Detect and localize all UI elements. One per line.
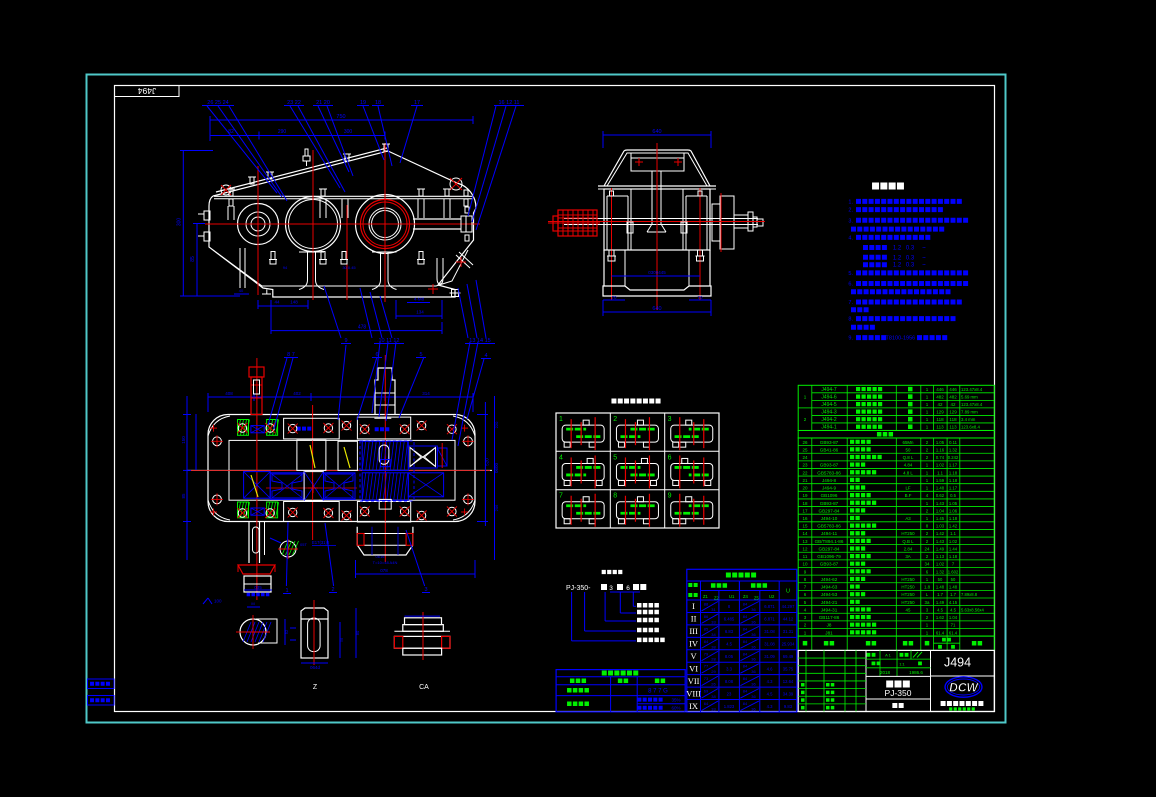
svg-text:7.: 7.: [848, 300, 853, 306]
svg-text:U1: U1: [729, 594, 735, 599]
svg-text:206: 206: [494, 504, 499, 511]
svg-text:12: 12: [802, 546, 808, 551]
svg-text:13: 13: [802, 539, 808, 544]
svg-text:45: 45: [906, 607, 911, 612]
svg-text:44: 44: [274, 300, 280, 305]
svg-text:VII: VII: [688, 676, 700, 686]
svg-text:GB117-86: GB117-86: [819, 615, 840, 620]
svg-text:1.42: 1.42: [936, 531, 945, 536]
svg-text:1.49: 1.49: [936, 546, 945, 551]
svg-text:28: 28: [711, 657, 716, 662]
svg-text:18: 18: [802, 501, 808, 506]
svg-text:9: 9: [668, 493, 672, 500]
svg-text:34: 34: [711, 632, 716, 637]
svg-text:8.08: 8.08: [725, 679, 734, 684]
svg-text:50: 50: [951, 577, 956, 582]
svg-text:4.15: 4.15: [949, 600, 958, 605]
svg-text:26: 26: [711, 682, 716, 687]
svg-text:Z5: Z5: [754, 596, 760, 601]
svg-text:1.2: 1.2: [893, 255, 902, 261]
svg-text:1.05: 1.05: [936, 440, 945, 445]
svg-text:1.48: 1.48: [936, 585, 945, 590]
svg-text:482: 482: [949, 395, 957, 400]
svg-text:6.871: 6.871: [764, 604, 775, 609]
svg-text:123.6x8.4: 123.6x8.4: [961, 425, 980, 430]
svg-text:1.16: 1.16: [936, 447, 945, 452]
svg-text:4: 4: [559, 454, 563, 461]
svg-text:4.3: 4.3: [767, 704, 773, 709]
svg-text:J494-2: J494-2: [821, 417, 837, 423]
svg-text:GB1096: GB1096: [821, 493, 838, 498]
svg-text:1.02: 1.02: [936, 562, 945, 567]
svg-text:88: 88: [704, 602, 709, 607]
svg-text:1.43: 1.43: [936, 501, 945, 506]
svg-text:70: 70: [611, 295, 617, 300]
svg-text:1.45: 1.45: [936, 516, 945, 521]
svg-text:36: 36: [751, 619, 756, 624]
svg-text:~: ~: [922, 255, 926, 261]
svg-text:U2: U2: [769, 594, 775, 599]
svg-text:J8: J8: [827, 623, 832, 628]
svg-text:30:0.45: 30:0.45: [342, 265, 356, 270]
svg-text:8: 8: [613, 493, 617, 500]
svg-text:III: III: [689, 626, 698, 636]
svg-text:1.: 1.: [848, 199, 853, 205]
svg-text:86: 86: [704, 614, 709, 619]
svg-text:U: U: [786, 589, 790, 595]
svg-text:33: 33: [711, 707, 716, 712]
svg-text:J494-9: J494-9: [822, 486, 836, 491]
svg-text:118: 118: [949, 417, 957, 422]
svg-text:Z: Z: [313, 684, 318, 691]
svg-text:GB297-84: GB297-84: [819, 508, 840, 513]
svg-text:9.: 9.: [848, 336, 853, 342]
svg-text:Z1: Z1: [703, 594, 709, 599]
svg-text:36: 36: [751, 607, 756, 612]
svg-text:1.1: 1.1: [950, 531, 956, 536]
svg-text:314: 314: [422, 391, 430, 396]
svg-text:GB93-87: GB93-87: [820, 463, 839, 468]
svg-text:50: 50: [906, 447, 911, 452]
svg-text:3: 3: [609, 585, 613, 592]
svg-text:84: 84: [743, 701, 748, 706]
svg-text:24: 24: [925, 546, 930, 551]
svg-text:J81: J81: [825, 630, 833, 635]
svg-text:J494-63: J494-63: [821, 585, 838, 590]
svg-text:14: 14: [802, 531, 808, 536]
svg-text:4.84: 4.84: [904, 463, 913, 468]
svg-text:134: 134: [416, 310, 424, 315]
svg-text:1.02: 1.02: [936, 463, 945, 468]
svg-text:HT250: HT250: [901, 585, 915, 590]
svg-text:71: 71: [951, 623, 956, 628]
svg-text:0.3: 0.3: [906, 263, 915, 269]
svg-text:1986.6: 1986.6: [909, 670, 923, 675]
svg-text:1.59: 1.59: [936, 478, 945, 483]
svg-text:1.03: 1.03: [936, 524, 945, 529]
svg-text:21: 21: [802, 478, 808, 483]
svg-text:60%: 60%: [671, 706, 680, 711]
svg-text:4.8 L: 4.8 L: [903, 470, 913, 475]
svg-text:640: 640: [652, 129, 661, 135]
svg-text:300: 300: [177, 218, 183, 227]
svg-text:2.: 2.: [848, 208, 853, 214]
svg-text:23: 23: [802, 463, 808, 468]
svg-text:84: 84: [743, 664, 748, 669]
svg-text:3: 3: [668, 416, 672, 423]
svg-text:94: 94: [283, 265, 288, 270]
svg-text:3a: 3a: [925, 600, 930, 605]
svg-text:M: M: [339, 638, 344, 641]
svg-text:1.17: 1.17: [949, 463, 958, 468]
svg-text:64: 64: [704, 701, 709, 706]
svg-text:17: 17: [802, 508, 808, 513]
svg-text:J494-11: J494-11: [821, 531, 838, 536]
svg-text:5.63x8.56x4: 5.63x8.56x4: [961, 607, 984, 612]
svg-text:0.74: 0.74: [936, 455, 945, 460]
svg-text:M: M: [251, 601, 254, 606]
svg-text:8.05: 8.05: [725, 654, 734, 659]
svg-text:J494-10: J494-10: [821, 516, 838, 521]
svg-text:1.32: 1.32: [936, 569, 945, 574]
svg-text:HT250: HT250: [901, 531, 915, 536]
svg-text:118: 118: [936, 417, 944, 422]
svg-text:4.3: 4.3: [767, 679, 773, 684]
svg-text:1.06: 1.06: [949, 508, 958, 513]
svg-text:2.84: 2.84: [904, 546, 913, 551]
svg-text:36: 36: [751, 632, 756, 637]
svg-text:148: 148: [290, 300, 298, 305]
svg-text:6.871: 6.871: [764, 617, 775, 622]
svg-text:1.42: 1.42: [949, 524, 958, 529]
svg-text:84: 84: [743, 651, 748, 656]
svg-text:34.39: 34.39: [783, 691, 794, 696]
svg-text:1.04: 1.04: [936, 508, 945, 513]
svg-text:DCW: DCW: [949, 681, 979, 695]
svg-text:A3: A3: [905, 516, 911, 521]
svg-text:PJ-350: PJ-350: [885, 688, 912, 698]
svg-text:J494-21: J494-21: [821, 600, 838, 605]
svg-text:129: 129: [936, 410, 944, 415]
svg-text:Q.B L: Q.B L: [902, 539, 914, 544]
svg-text:A 1: A 1: [885, 652, 892, 657]
svg-text:36: 36: [751, 682, 756, 687]
svg-text:HT250: HT250: [901, 592, 915, 597]
svg-text:3.3: 3.3: [726, 666, 732, 671]
svg-text:11: 11: [803, 554, 808, 559]
svg-text:J494-7: J494-7: [821, 387, 837, 393]
svg-text:31.08: 31.08: [764, 629, 775, 634]
svg-text:0.3: 0.3: [906, 246, 915, 252]
svg-text:77: 77: [704, 664, 709, 669]
svg-text:80: 80: [355, 630, 360, 635]
svg-text:61.4: 61.4: [936, 630, 945, 635]
svg-text:44.12: 44.12: [783, 617, 794, 622]
svg-text:85: 85: [181, 493, 186, 499]
svg-text:6.83: 6.83: [725, 629, 734, 634]
svg-text:22: 22: [802, 470, 808, 475]
svg-text:1.04: 1.04: [949, 615, 958, 620]
svg-text:33: 33: [711, 619, 716, 624]
svg-text:GB93-87: GB93-87: [820, 501, 839, 506]
svg-text:J494-6: J494-6: [821, 395, 837, 401]
svg-text:064d: 064d: [310, 665, 321, 670]
svg-text:GB41-86: GB41-86: [820, 447, 839, 452]
svg-text:520: 520: [485, 458, 490, 466]
svg-text:T=10=48 A4N: T=10=48 A4N: [373, 560, 398, 565]
svg-text:0600: 0600: [494, 462, 499, 473]
svg-text:035: 035: [254, 585, 262, 590]
svg-text:1.48: 1.48: [949, 585, 958, 590]
svg-text:16: 16: [802, 516, 808, 521]
svg-text:31.09: 31.09: [764, 654, 775, 659]
svg-text:113: 113: [949, 425, 957, 430]
svg-text:73: 73: [704, 676, 709, 681]
svg-text:0.3: 0.3: [906, 255, 915, 261]
svg-text:23: 23: [727, 691, 732, 696]
svg-text:1.62: 1.62: [936, 615, 945, 620]
svg-text:35%: 35%: [671, 698, 680, 703]
svg-text:1.2: 1.2: [893, 246, 902, 252]
svg-text:113: 113: [936, 425, 944, 430]
svg-text:290: 290: [278, 129, 287, 135]
svg-text:4.5: 4.5: [937, 607, 943, 612]
svg-text:446: 446: [949, 387, 957, 392]
svg-text:0.11: 0.11: [949, 440, 958, 445]
svg-text:100: 100: [214, 599, 222, 604]
svg-text:1.7: 1.7: [937, 592, 943, 597]
svg-text:123.47x8.4: 123.47x8.4: [961, 387, 983, 392]
svg-text:4.6: 4.6: [767, 666, 773, 671]
svg-text:7.89x8.8: 7.89x8.8: [961, 592, 978, 597]
svg-text:61.4: 61.4: [949, 630, 958, 635]
svg-text:II: II: [691, 614, 697, 624]
svg-text:1.43: 1.43: [936, 539, 945, 544]
svg-text:078: 078: [380, 568, 388, 573]
svg-text:05T: 05T: [300, 542, 307, 547]
svg-text:300: 300: [344, 129, 353, 135]
svg-text:Q.8 L: Q.8 L: [903, 455, 914, 460]
svg-text:J494-8: J494-8: [822, 478, 836, 483]
svg-text:4-M8: 4-M8: [414, 297, 425, 302]
svg-text:26: 26: [802, 440, 808, 445]
svg-text:1.32: 1.32: [949, 447, 958, 452]
svg-text:J494-31: J494-31: [821, 607, 838, 612]
svg-text:36: 36: [751, 707, 756, 712]
svg-text:1.02: 1.02: [949, 539, 958, 544]
svg-text:GB5783-86: GB5783-86: [817, 524, 841, 529]
svg-text:0.5: 0.5: [950, 493, 956, 498]
svg-text:402: 402: [293, 391, 301, 396]
svg-text:B.F: B.F: [905, 493, 912, 498]
svg-text:VI: VI: [689, 663, 698, 673]
svg-text:4.5: 4.5: [950, 607, 956, 612]
svg-text:12.64: 12.64: [783, 679, 794, 684]
svg-text:84: 84: [743, 614, 748, 619]
svg-text:1.602: 1.602: [948, 569, 959, 574]
svg-text:1.49: 1.49: [936, 600, 945, 605]
svg-text:~: ~: [922, 263, 926, 269]
svg-text:1.18: 1.18: [949, 470, 958, 475]
svg-text:IV: IV: [689, 639, 699, 649]
svg-text:79: 79: [704, 651, 709, 656]
svg-text:20: 20: [802, 486, 808, 491]
svg-text:84: 84: [743, 626, 748, 631]
svg-text:29: 29: [711, 669, 716, 674]
svg-text:J494: J494: [944, 656, 971, 670]
svg-text:25.934: 25.934: [782, 642, 795, 647]
svg-text:31.31: 31.31: [783, 629, 794, 634]
svg-text:70: 70: [697, 295, 703, 300]
svg-text:Z4: Z4: [743, 594, 749, 599]
svg-text:GB93-87: GB93-87: [820, 562, 839, 567]
svg-text:1.44: 1.44: [949, 546, 958, 551]
svg-text:0616: 0616: [376, 554, 386, 559]
svg-text:V: V: [691, 651, 698, 661]
svg-text:1.48: 1.48: [936, 486, 945, 491]
svg-text:1.7: 1.7: [950, 592, 956, 597]
svg-text:9.83: 9.83: [784, 704, 793, 709]
svg-text:J494-53: J494-53: [821, 592, 838, 597]
svg-text:GB297-84: GB297-84: [819, 546, 840, 551]
svg-text:1.18: 1.18: [949, 554, 958, 559]
svg-text:42: 42: [937, 402, 943, 407]
svg-text:6.485: 6.485: [724, 617, 735, 622]
svg-text:25: 25: [802, 447, 808, 452]
svg-text:640: 640: [652, 306, 661, 312]
svg-text:1: 1: [559, 416, 563, 423]
svg-text:1:1: 1:1: [899, 661, 905, 666]
svg-text:34: 34: [925, 562, 930, 567]
svg-text:3.: 3.: [848, 218, 853, 224]
svg-text:35.75: 35.75: [783, 666, 794, 671]
svg-text:84: 84: [743, 602, 748, 607]
svg-text:5.: 5.: [848, 271, 853, 277]
svg-text:3.4 mm: 3.4 mm: [961, 417, 976, 422]
svg-text:123.47x8.4: 123.47x8.4: [961, 402, 983, 407]
svg-text:38: 38: [711, 694, 716, 699]
svg-text:IX: IX: [689, 701, 698, 711]
svg-text:PJ-350-: PJ-350-: [566, 585, 591, 592]
svg-text:69.49: 69.49: [783, 654, 794, 659]
svg-text:GB5783-86: GB5783-86: [817, 470, 841, 475]
svg-text:38: 38: [711, 644, 716, 649]
svg-text:8.: 8.: [848, 317, 853, 323]
svg-text:220: 220: [494, 421, 499, 428]
svg-text:7: 7: [559, 493, 563, 500]
svg-text:5: 5: [613, 454, 617, 461]
svg-text:129: 129: [949, 410, 957, 415]
svg-text:69: 69: [704, 689, 709, 694]
svg-text:19: 19: [802, 493, 808, 498]
svg-text:52: 52: [284, 629, 289, 634]
svg-text:4.: 4.: [848, 235, 853, 241]
svg-text:31: 31: [711, 607, 716, 612]
svg-text:1.823: 1.823: [724, 704, 735, 709]
svg-text:36: 36: [751, 694, 756, 699]
svg-text:85: 85: [704, 626, 709, 631]
svg-text:7.89 mm: 7.89 mm: [961, 410, 978, 415]
svg-text:HT250: HT250: [901, 577, 915, 582]
svg-text:VIII: VIII: [686, 688, 701, 698]
svg-text:GB1096-79: GB1096-79: [817, 554, 841, 559]
svg-text:4.5: 4.5: [767, 691, 773, 696]
svg-text:1.8: 1.8: [924, 585, 931, 590]
svg-text:J494-1: J494-1: [821, 425, 837, 431]
svg-text:408: 408: [225, 391, 233, 396]
svg-text:1.18: 1.18: [949, 478, 958, 483]
svg-text:36: 36: [751, 657, 756, 662]
svg-text:42: 42: [950, 402, 956, 407]
svg-text:CA: CA: [419, 684, 429, 691]
svg-text:84: 84: [743, 689, 748, 694]
svg-text:0.62: 0.62: [936, 493, 945, 498]
svg-text:1.1: 1.1: [937, 470, 943, 475]
svg-text:I: I: [692, 601, 695, 611]
svg-text:6: 6: [626, 585, 630, 592]
svg-text:44.297: 44.297: [782, 604, 795, 609]
svg-text:2: 2: [613, 416, 617, 423]
svg-text:24: 24: [802, 455, 808, 460]
svg-text:0.242: 0.242: [948, 455, 959, 460]
svg-text:6.: 6.: [848, 282, 853, 288]
svg-text:31.08: 31.08: [764, 642, 775, 647]
svg-text:84: 84: [743, 639, 748, 644]
svg-text:65Mn: 65Mn: [903, 440, 915, 445]
svg-text:1.17: 1.17: [949, 486, 958, 491]
svg-text:10: 10: [802, 562, 808, 567]
svg-text:15: 15: [802, 524, 808, 529]
svg-text:J494-3: J494-3: [821, 410, 837, 416]
svg-text:GB/T894.1-86: GB/T894.1-86: [815, 539, 844, 544]
svg-text:3A: 3A: [905, 554, 910, 559]
svg-text:2018: 2018: [880, 670, 891, 675]
svg-text:5.69 mm: 5.69 mm: [961, 395, 978, 400]
svg-text:36: 36: [751, 644, 756, 649]
svg-text:478: 478: [358, 325, 367, 331]
svg-text:/T8100-1956: /T8100-1956: [884, 336, 915, 342]
svg-text:85: 85: [190, 256, 196, 262]
svg-text:482: 482: [936, 395, 944, 400]
svg-text:0300445: 0300445: [648, 270, 666, 275]
svg-text:J494-62: J494-62: [821, 577, 838, 582]
svg-text:J494-5: J494-5: [821, 402, 837, 408]
svg-text:50: 50: [938, 577, 943, 582]
svg-text:HT250: HT250: [901, 600, 915, 605]
svg-text:84: 84: [743, 676, 748, 681]
svg-text:LF: LF: [905, 486, 910, 491]
svg-text:750: 750: [336, 114, 345, 120]
svg-text:6: 6: [668, 454, 672, 461]
svg-text:J494: J494: [138, 86, 157, 96]
svg-text:1.2: 1.2: [893, 263, 902, 269]
svg-text:1.18: 1.18: [949, 516, 958, 521]
svg-text:1.13: 1.13: [936, 554, 945, 559]
svg-text:~: ~: [922, 246, 926, 252]
svg-text:8 7 7 G: 8 7 7 G: [648, 689, 668, 695]
svg-text:GB93-87: GB93-87: [820, 440, 839, 445]
svg-text:40: 40: [239, 288, 244, 293]
svg-text:1.05: 1.05: [949, 501, 958, 506]
svg-text:36: 36: [751, 669, 756, 674]
svg-text:150: 150: [181, 436, 186, 444]
svg-text:446: 446: [936, 387, 944, 392]
svg-text:4.5: 4.5: [726, 642, 732, 647]
svg-text:84: 84: [704, 639, 709, 644]
